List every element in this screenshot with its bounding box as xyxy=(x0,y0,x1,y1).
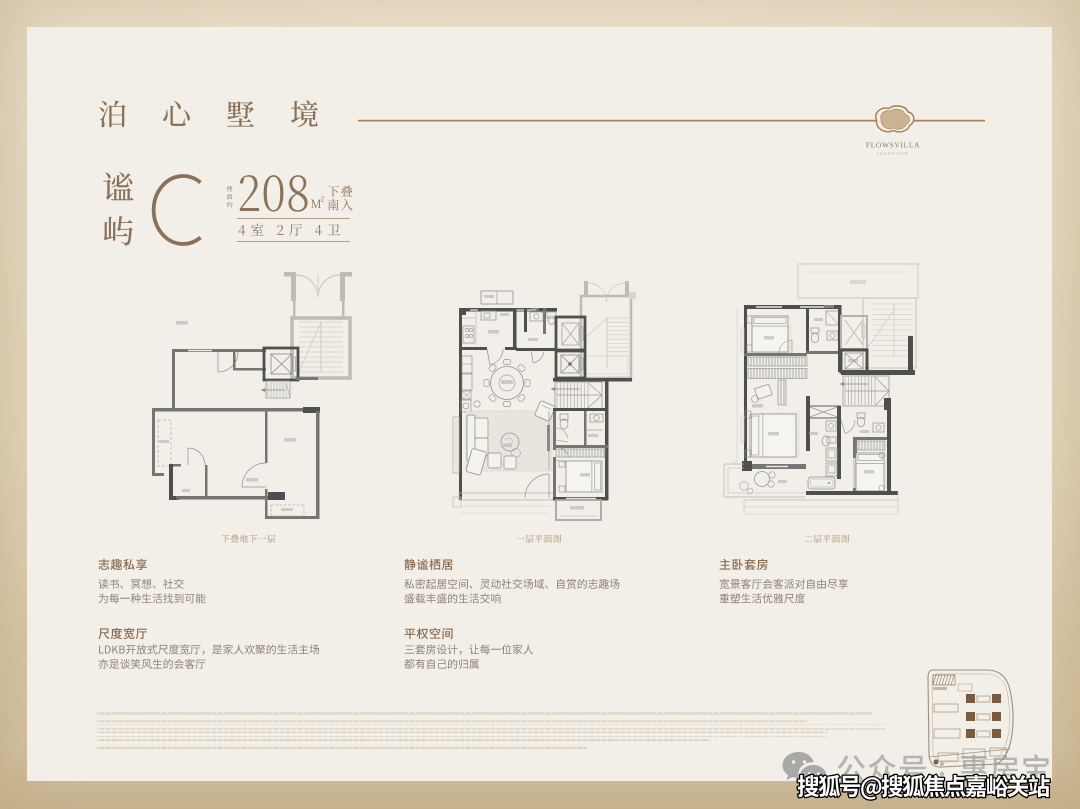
svg-text:GRANDVIEW: GRANDVIEW xyxy=(877,152,910,156)
svg-text:FLOWSVILLA: FLOWSVILLA xyxy=(866,141,920,150)
